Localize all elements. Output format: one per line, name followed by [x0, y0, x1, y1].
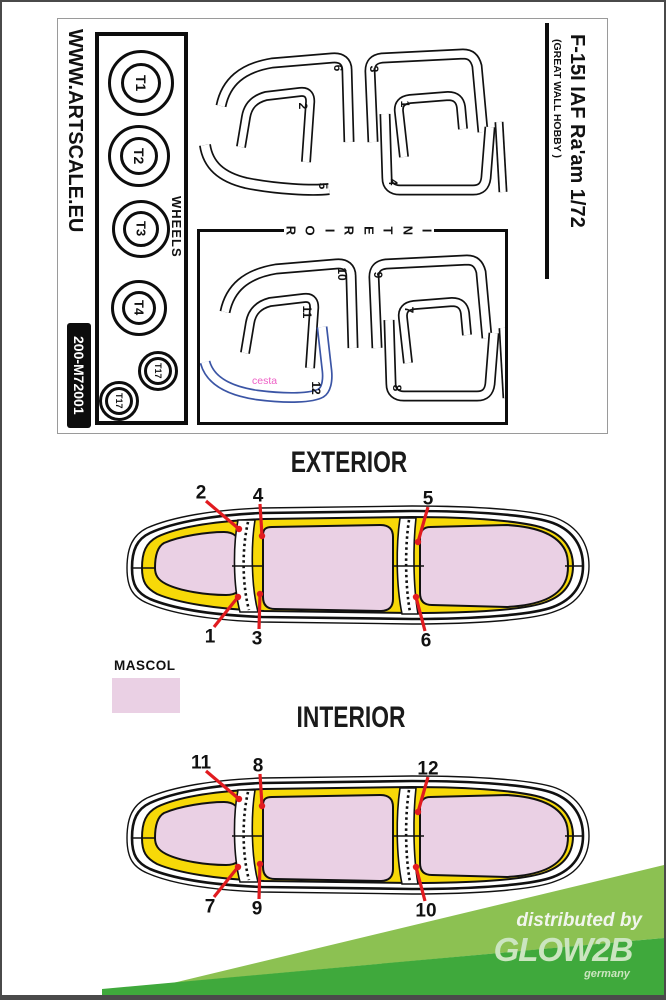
- interior-border-letter: I: [322, 224, 337, 238]
- window-middle: [263, 795, 393, 881]
- mask-number: 11: [300, 306, 314, 319]
- wheel-mask-t2: T2: [108, 125, 170, 187]
- wheel-label: T4: [132, 300, 147, 315]
- wheel-mask-t4: T4: [111, 280, 167, 336]
- mask-number: 12: [309, 381, 323, 395]
- wheel-mask-t3: T3: [112, 200, 170, 258]
- interior-heading: INTERIOR: [297, 701, 406, 735]
- interior-border-letter: R: [342, 224, 357, 238]
- wheels-panel: T1 T2 T3 T4 T17 T17 WHEELS: [95, 32, 188, 425]
- wheel-label: T17: [153, 363, 163, 379]
- product-code-badge: 200-M72001: [67, 323, 91, 428]
- mascol-label: MASCOL: [114, 658, 176, 673]
- window-middle: [263, 525, 393, 611]
- wheel-label: T2: [131, 148, 147, 164]
- glow2b-logo: GLOW2B: [494, 931, 633, 968]
- callout-number: 6: [421, 631, 432, 651]
- callout-number: 4: [253, 486, 264, 507]
- interior-border-letter: T: [381, 224, 396, 238]
- exterior-canopy-diagram: 245136: [112, 480, 592, 650]
- callout-number: 9: [252, 899, 263, 920]
- page: WWW.ARTSCALE.EU 200-M72001 T1 T2 T3 T4 T…: [0, 0, 666, 1000]
- mask-number: 10: [335, 267, 349, 281]
- interior-masks-panel: 101197812cesta ROIRETNI: [197, 229, 508, 425]
- artscale-url: WWW.ARTSCALE.EU: [63, 29, 86, 232]
- exterior-masks-canvas: 623145: [196, 26, 516, 206]
- interior-border-letter: O: [303, 224, 318, 238]
- exterior-heading: EXTERIOR: [291, 446, 408, 480]
- callout-number: 11: [191, 753, 212, 774]
- window-front: [155, 802, 241, 865]
- mask-sheet: WWW.ARTSCALE.EU 200-M72001 T1 T2 T3 T4 T…: [57, 18, 608, 434]
- interior-border-letter: N: [400, 224, 415, 238]
- kit-title: F-15I IAF Ra'am 1/72: [565, 34, 588, 228]
- product-code: 200-M72001: [71, 336, 87, 415]
- wheel-mask-t17: T17: [99, 381, 139, 421]
- mask-number: 8: [390, 385, 404, 392]
- window-rear: [420, 795, 568, 877]
- callout-number: 12: [417, 759, 438, 780]
- wheel-mask-t17: T17: [138, 351, 178, 391]
- mask-number: 5: [316, 183, 330, 190]
- title-rule: [545, 23, 549, 279]
- kit-subtitle: (GREAT WALL HOBBY ): [551, 39, 563, 158]
- callout-number: 8: [253, 756, 264, 777]
- callout-number: 7: [205, 897, 216, 918]
- mask-number: 4: [386, 179, 400, 186]
- interior-border-letter: I: [419, 224, 434, 238]
- mascol-swatch: [112, 678, 180, 713]
- mask-number: 9: [371, 272, 385, 279]
- callout-number: 3: [252, 629, 263, 650]
- mask-number: 1: [398, 101, 412, 108]
- interior-border-letter: R: [284, 224, 299, 238]
- window-rear: [420, 525, 568, 607]
- window-front: [155, 532, 241, 595]
- interior-canopy-diagram: 118127910: [112, 750, 592, 920]
- interior-masks-canvas: 101197812cesta: [200, 232, 505, 422]
- mask-shape-side_strip: [503, 328, 505, 398]
- callout-number: 1: [205, 627, 216, 648]
- callout-number: 2: [196, 483, 207, 504]
- interior-panel-border-label: ROIRETNI: [284, 221, 434, 240]
- wheel-label: T1: [133, 75, 149, 91]
- mask-shape-side_strip: [499, 122, 503, 192]
- wheels-section-label: WHEELS: [169, 196, 184, 258]
- mask-number: 6: [331, 65, 345, 72]
- mask-number: 2: [296, 103, 310, 110]
- germany-text: germany: [583, 968, 631, 980]
- wheel-label: T3: [134, 221, 149, 236]
- callout-number: 5: [423, 489, 434, 510]
- wheel-label: T17: [114, 393, 124, 409]
- interior-border-letter: E: [361, 224, 376, 238]
- mask-number: 3: [367, 66, 381, 73]
- callout-number: 10: [415, 901, 436, 921]
- mask-number: 7: [402, 307, 416, 314]
- cut-path-label: cesta: [252, 375, 277, 387]
- wheel-mask-t1: T1: [108, 50, 174, 116]
